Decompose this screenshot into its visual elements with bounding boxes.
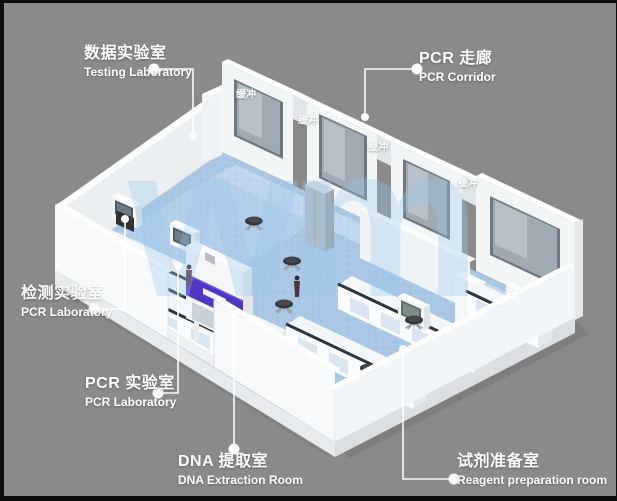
frame-edge	[0, 0, 617, 3]
buffer-room-tag: 缓冲	[298, 112, 318, 127]
callout-zh-label: DNA 提取室	[178, 452, 303, 471]
callout-inspection-laboratory: 检测实验室 PCR Laboratory	[21, 284, 112, 319]
callout-en-label: PCR Laboratory	[21, 305, 112, 319]
callout-en-label: Testing Laboratory	[84, 65, 192, 79]
callout-en-label: DNA Extraction Room	[178, 473, 303, 487]
buffer-room-tag: 缓冲	[368, 139, 388, 154]
lab-fridge	[305, 180, 334, 252]
buffer-room-tag: 缓冲	[236, 86, 256, 101]
callout-testing-laboratory: 数据实验室 Testing Laboratory	[84, 44, 192, 79]
buffer-room-tag: 缓冲	[458, 175, 478, 190]
callout-zh-label: 试剂准备室	[457, 452, 607, 471]
callout-zh-label: PCR 实验室	[85, 374, 176, 393]
frame-edge	[0, 496, 617, 501]
callout-zh-label: 检测实验室	[21, 284, 112, 303]
frame-edge	[0, 0, 4, 501]
screenshot-canvas: wm 数据实验室 Testing Laborato	[0, 0, 617, 501]
callout-reagent-preparation: 试剂准备室 Reagent preparation room	[457, 452, 607, 487]
callout-en-label: Reagent preparation room	[457, 473, 607, 487]
render-stage: wm 数据实验室 Testing Laborato	[0, 0, 617, 501]
callout-en-label: PCR Laboratory	[85, 395, 176, 409]
callout-pcr-corridor: PCR 走廊 PCR Corridor	[419, 49, 496, 84]
callout-zh-label: PCR 走廊	[419, 49, 496, 68]
callout-en-label: PCR Corridor	[419, 70, 496, 84]
callout-zh-label: 数据实验室	[84, 44, 192, 63]
callout-pcr-laboratory: PCR 实验室 PCR Laboratory	[85, 374, 176, 409]
callout-dna-extraction-room: DNA 提取室 DNA Extraction Room	[178, 452, 303, 487]
